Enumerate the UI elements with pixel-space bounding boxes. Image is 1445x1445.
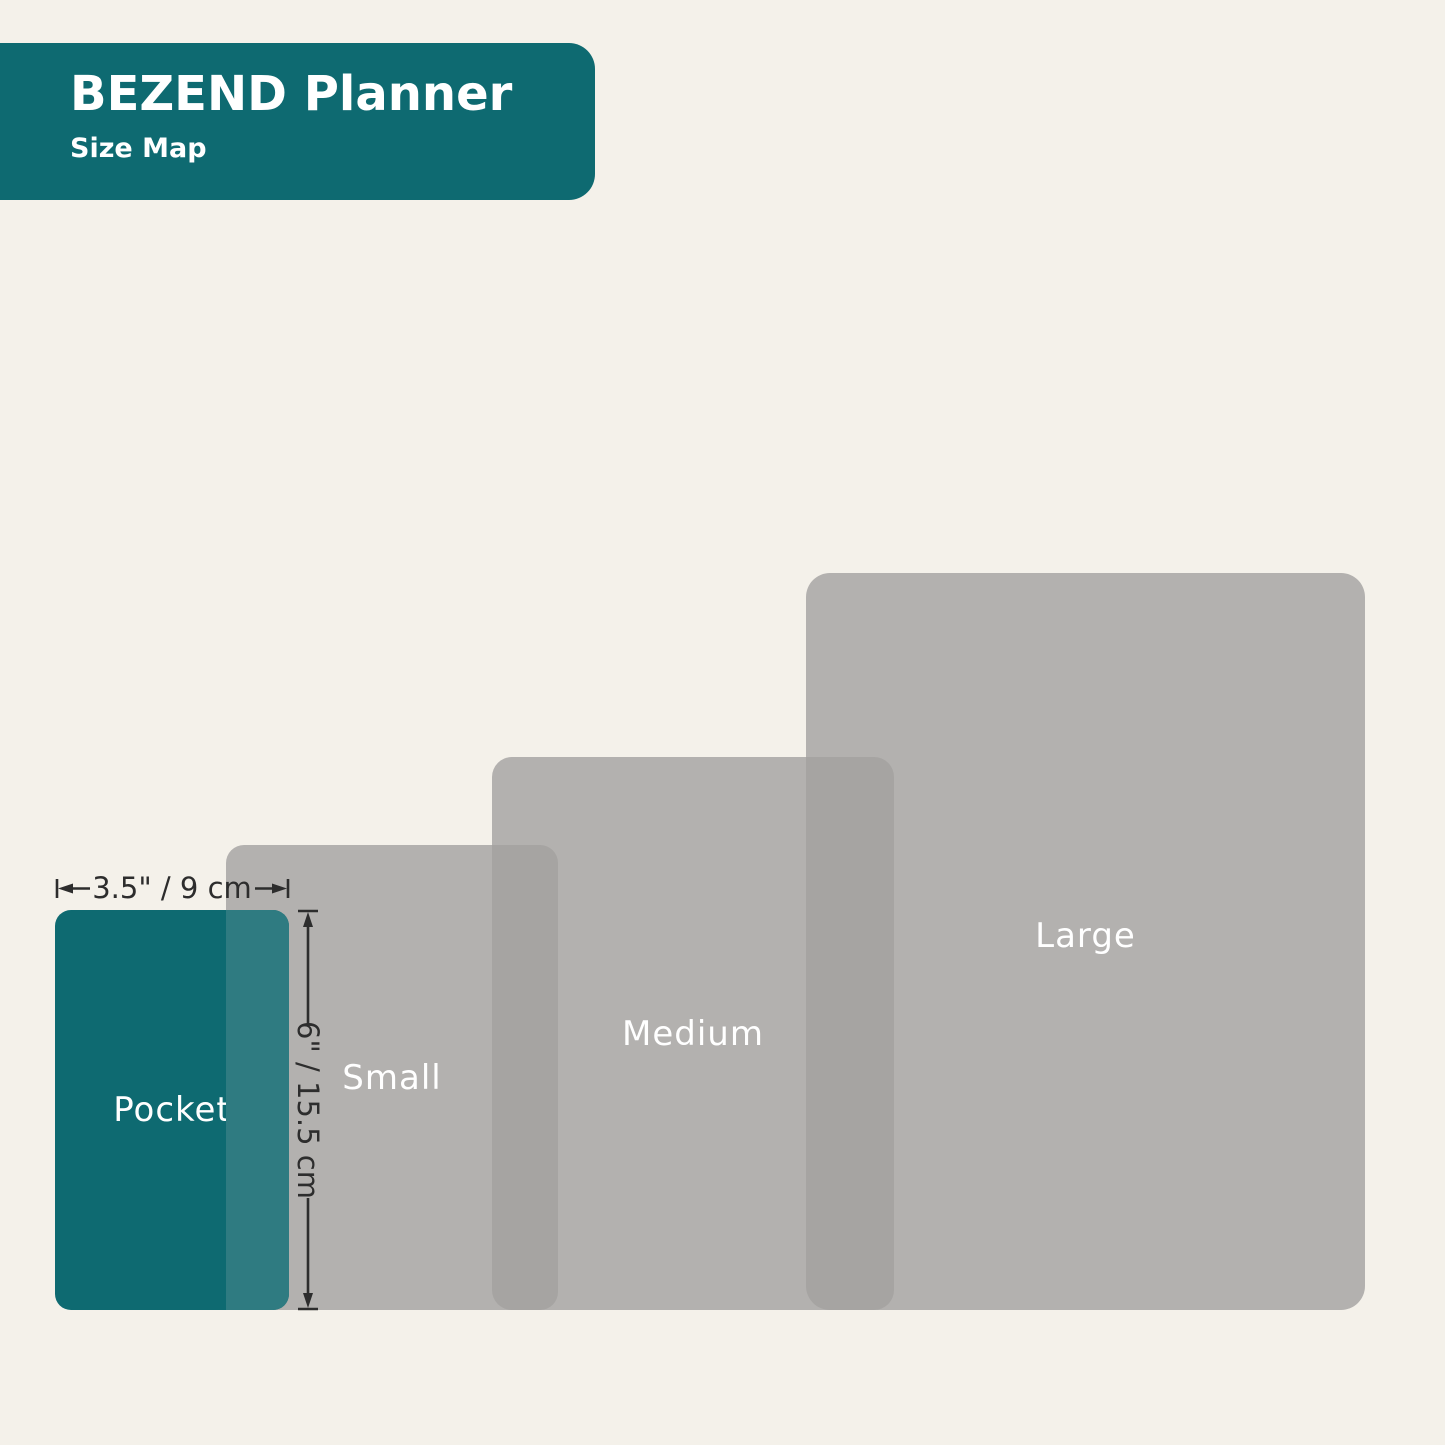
width-dimension-label: 3.5" / 9 cm [92,871,252,905]
size-label-medium: Medium [622,1014,764,1054]
header-badge: BEZEND Planner Size Map [0,43,595,200]
overlap-region-small-medium [492,845,558,1310]
page-subtitle: Size Map [70,133,575,164]
overlap-region-medium-large [806,757,894,1310]
page-title: BEZEND Planner [70,68,575,121]
size-label-small: Small [342,1058,441,1098]
height-dimension: 6" / 15.5 cm [292,898,328,1322]
arrowhead-right-icon [272,884,287,894]
size-label-large: Large [1035,916,1136,956]
size-map-infographic: Large Medium Small Pocket 3.5" / 9 cm 6"… [0,0,1445,1445]
overlap-region-pocket-small [226,910,289,1310]
width-dimension: 3.5" / 9 cm [45,872,300,906]
arrowhead-down-icon [303,1293,313,1308]
height-dimension-label: 6" / 15.5 cm [291,1021,325,1199]
arrowhead-up-icon [303,912,313,927]
arrowhead-left-icon [58,884,73,894]
size-label-pocket: Pocket [113,1090,231,1130]
